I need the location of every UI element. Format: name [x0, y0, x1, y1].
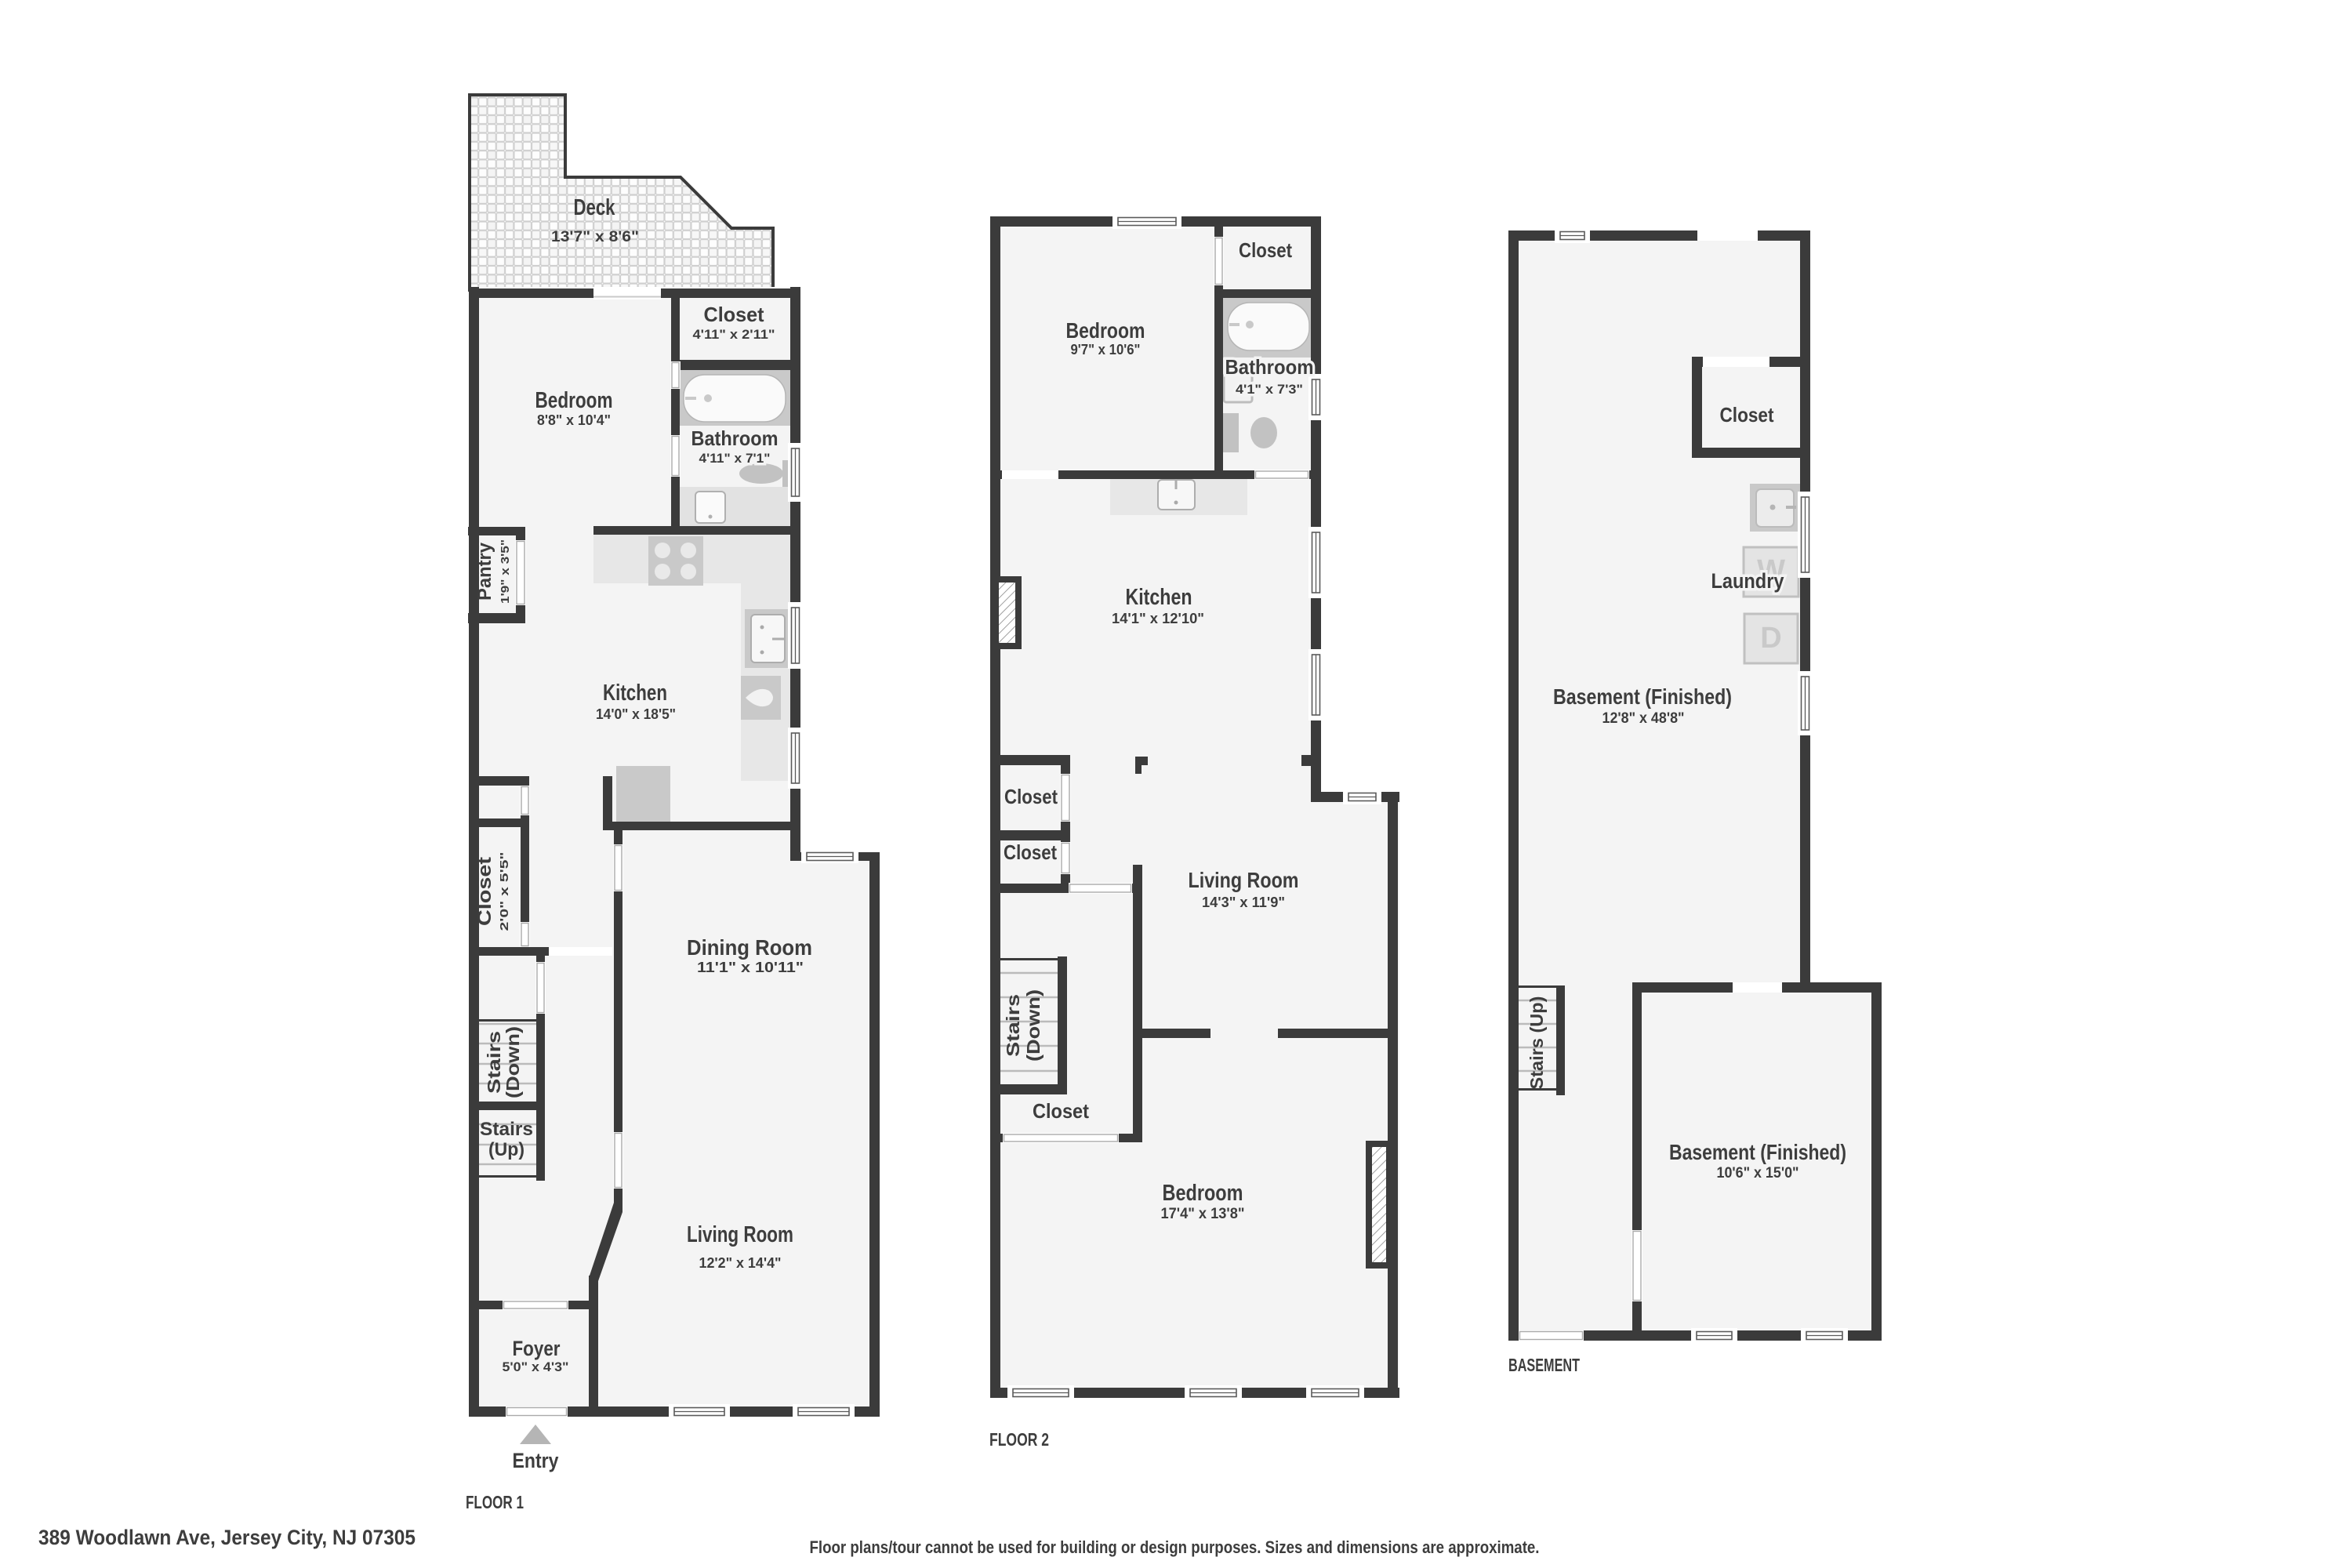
svg-text:Kitchen: Kitchen — [1126, 585, 1192, 610]
svg-text:Stairs: Stairs — [1003, 994, 1023, 1057]
svg-text:4'1" x 7'3": 4'1" x 7'3" — [1236, 382, 1303, 397]
svg-text:Closet: Closet — [474, 857, 495, 926]
svg-text:Basement (Finished): Basement (Finished) — [1553, 684, 1732, 709]
svg-text:14'3" x 11'9": 14'3" x 11'9" — [1202, 895, 1285, 910]
svg-text:Living Room: Living Room — [687, 1222, 793, 1247]
svg-text:BASEMENT: BASEMENT — [1508, 1355, 1580, 1375]
svg-text:Closet: Closet — [1033, 1099, 1089, 1123]
svg-text:Dining Room: Dining Room — [687, 935, 812, 960]
svg-text:Pantry: Pantry — [474, 542, 495, 601]
svg-text:Closet: Closet — [1239, 238, 1292, 262]
svg-text:FLOOR 2: FLOOR 2 — [989, 1429, 1049, 1450]
svg-text:Bedroom: Bedroom — [1066, 318, 1145, 343]
svg-text:17'4" x 13'8": 17'4" x 13'8" — [1161, 1206, 1245, 1222]
svg-text:Floor plans/tour cannot be use: Floor plans/tour cannot be used for buil… — [810, 1537, 1540, 1557]
svg-text:Closet: Closet — [1720, 403, 1774, 426]
svg-text:9'7" x 10'6": 9'7" x 10'6" — [1071, 342, 1141, 358]
svg-text:Deck: Deck — [574, 195, 616, 220]
svg-text:D: D — [1760, 622, 1781, 655]
svg-text:Closet: Closet — [1004, 785, 1058, 808]
svg-text:Laundry: Laundry — [1711, 569, 1784, 593]
svg-text:Bathroom: Bathroom — [691, 426, 779, 450]
svg-text:8'8" x 10'4": 8'8" x 10'4" — [537, 412, 611, 428]
svg-text:Bathroom: Bathroom — [1225, 355, 1314, 379]
svg-text:Basement (Finished): Basement (Finished) — [1669, 1140, 1846, 1164]
svg-text:Foyer: Foyer — [513, 1337, 561, 1360]
svg-text:14'0" x 18'5": 14'0" x 18'5" — [596, 706, 676, 722]
svg-text:12'8" x 48'8": 12'8" x 48'8" — [1602, 710, 1685, 727]
svg-text:Bedroom: Bedroom — [535, 388, 613, 413]
svg-text:2'0" x 5'5": 2'0" x 5'5" — [498, 852, 511, 931]
svg-text:10'6" x 15'0": 10'6" x 15'0" — [1717, 1165, 1799, 1181]
svg-text:5'0" x 4'3": 5'0" x 4'3" — [503, 1359, 569, 1374]
svg-text:Bedroom: Bedroom — [1163, 1181, 1243, 1206]
svg-text:14'1" x 12'10": 14'1" x 12'10" — [1112, 611, 1204, 626]
svg-text:Entry: Entry — [513, 1449, 559, 1472]
svg-text:(Up): (Up) — [488, 1139, 524, 1160]
svg-text:Stairs: Stairs — [484, 1031, 504, 1094]
svg-text:11'1" x 10'11": 11'1" x 10'11" — [697, 960, 804, 975]
svg-text:12'2" x 14'4": 12'2" x 14'4" — [699, 1255, 782, 1271]
svg-text:(Down): (Down) — [503, 1026, 523, 1098]
svg-text:13'7" x 8'6": 13'7" x 8'6" — [551, 229, 639, 245]
svg-text:4'11" x 7'1": 4'11" x 7'1" — [699, 451, 771, 466]
svg-text:FLOOR 1: FLOOR 1 — [466, 1492, 524, 1512]
svg-text:389 Woodlawn Ave, Jersey City,: 389 Woodlawn Ave, Jersey City, NJ 07305 — [38, 1526, 416, 1549]
svg-text:Stairs (Up): Stairs (Up) — [1526, 996, 1547, 1090]
svg-text:4'11" x 2'11": 4'11" x 2'11" — [693, 327, 775, 342]
svg-text:(Down): (Down) — [1023, 989, 1044, 1062]
svg-text:Living Room: Living Room — [1189, 868, 1299, 892]
svg-text:Stairs: Stairs — [480, 1119, 533, 1140]
svg-text:Closet: Closet — [1004, 840, 1057, 864]
svg-text:Kitchen: Kitchen — [603, 681, 667, 706]
svg-text:Closet: Closet — [704, 303, 764, 326]
svg-text:1'9" x 3'5": 1'9" x 3'5" — [499, 539, 512, 604]
